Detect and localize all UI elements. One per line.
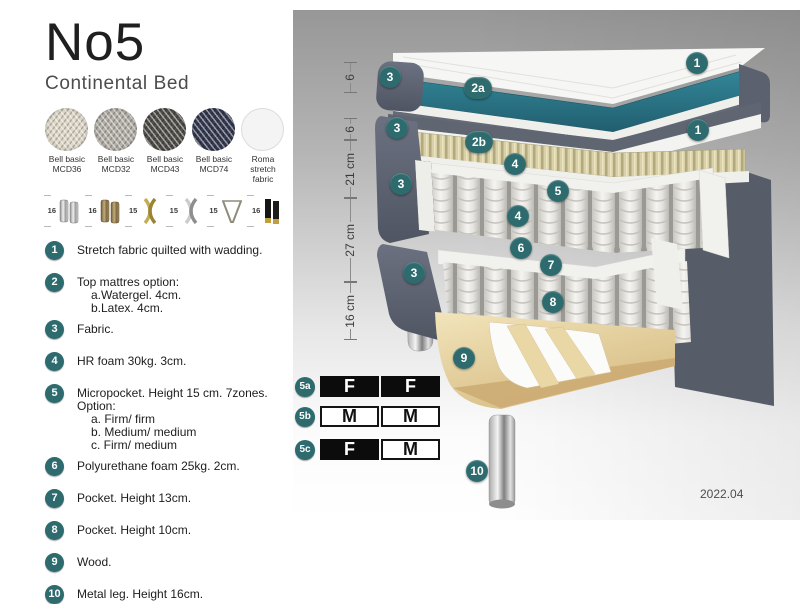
feature-item-7: 7 Pocket. Height 13cm. (45, 489, 293, 508)
feature-item-1: 1 Stretch fabric quilted with wadding. (45, 241, 293, 260)
feature-item-9: 9 Wood. (45, 553, 293, 572)
spec-panel: No5 Continental Bed Bell basicMCD36 Bell… (0, 0, 293, 533)
firmness-cell: F (320, 439, 379, 460)
version-date: 2022.04 (700, 487, 743, 501)
fabric-swatch-image (241, 108, 284, 151)
fabric-swatch-label: Bell basicMCD32 (94, 154, 138, 174)
firmness-cell: M (381, 406, 440, 427)
firmness-cells: M M (320, 406, 440, 427)
diagram-badge-3-mid2: 3 (390, 173, 412, 195)
feature-text: Top mattres option: a.Watergel. 4cm. b.L… (77, 273, 181, 315)
leg-cylinder-silver-icon (57, 196, 81, 226)
diagram-badge-2a: 2a (464, 77, 492, 99)
feature-text: Micropocket. Height 15 cm. 7zones. Optio… (77, 384, 293, 452)
firmness-row-5c: 5c F M (295, 439, 440, 460)
product-title: No5 (45, 16, 293, 70)
fabric-swatch-mcd36: Bell basicMCD36 (45, 108, 89, 185)
fabric-swatch-image (94, 108, 137, 151)
leg-black-gold-icon (261, 196, 283, 226)
firmness-cell: F (320, 376, 379, 397)
feature-text: Wood. (77, 553, 111, 569)
feature-number-badge: 10 (45, 585, 64, 604)
leg-option-black-gold: 16 (248, 193, 287, 229)
leg-cross-gold-icon (138, 196, 162, 226)
feature-item-4: 4 HR foam 30kg. 3cm. (45, 352, 293, 371)
diagram-badge-4-top: 4 (504, 153, 526, 175)
product-subtitle: Continental Bed (45, 73, 293, 95)
feature-text: Stretch fabric quilted with wadding. (77, 241, 262, 257)
dimension-6-top: 6 (341, 62, 359, 93)
diagram-badge-1-top: 1 (686, 52, 708, 74)
diagram-badge-5: 5 (547, 180, 569, 202)
diagram-badge-3-mid1: 3 (386, 117, 408, 139)
fabric-swatch-roma: Romastretch fabric (241, 108, 285, 185)
fabric-swatches: Bell basicMCD36 Bell basicMCD32 Bell bas… (45, 108, 287, 185)
feature-number-badge: 8 (45, 521, 64, 540)
firmness-cell: M (320, 406, 379, 427)
firmness-badge: 5c (295, 440, 315, 460)
fabric-swatch-label: Bell basicMCD74 (192, 154, 236, 174)
diagram-badge-7: 7 (540, 254, 562, 276)
leg-option-cylinder-silver: 16 (45, 193, 84, 229)
feature-item-2: 2 Top mattres option: a.Watergel. 4cm. b… (45, 273, 293, 315)
feature-number-badge: 9 (45, 553, 64, 572)
feature-text: HR foam 30kg. 3cm. (77, 352, 186, 368)
leg-cylinder-bronze-icon (98, 196, 122, 226)
feature-number-badge: 1 (45, 241, 64, 260)
fabric-swatch-image (143, 108, 186, 151)
diagram-badge-3-bottom: 3 (403, 262, 425, 284)
feature-number-badge: 2 (45, 273, 64, 292)
diagram-badge-9: 9 (453, 347, 475, 369)
diagram-badge-8: 8 (542, 291, 564, 313)
feature-text: Fabric. (77, 320, 114, 336)
fabric-swatch-image (45, 108, 88, 151)
diagram-badge-2b: 2b (465, 131, 493, 153)
firmness-row-5a: 5a F F (295, 376, 440, 397)
leg-option-hairpin: 15 (208, 193, 247, 229)
fabric-swatch-label: Bell basicMCD43 (143, 154, 187, 174)
dimension-27cm: 27 cm (341, 198, 359, 282)
feature-list: 1 Stretch fabric quilted with wadding. 2… (45, 241, 293, 604)
leg-option-cross-gold: 15 (126, 193, 165, 229)
diagram-panel: 6 6 21 cm 27 cm 16 cm 3 2a 1 3 2b 1 4 5 … (293, 10, 800, 520)
firmness-cell: F (381, 376, 440, 397)
fabric-swatch-mcd43: Bell basicMCD43 (143, 108, 187, 185)
firmness-cells: F M (320, 439, 440, 460)
firmness-cells: F F (320, 376, 440, 397)
firmness-badge: 5b (295, 407, 315, 427)
feature-number-badge: 6 (45, 457, 64, 476)
diagram-badge-6: 6 (510, 237, 532, 259)
dimension-16cm: 16 cm (341, 282, 359, 340)
firmness-cell: M (381, 439, 440, 460)
feature-item-5: 5 Micropocket. Height 15 cm. 7zones. Opt… (45, 384, 293, 452)
feature-item-8: 8 Pocket. Height 10cm. (45, 521, 293, 540)
leg-option-cross-silver: 15 (167, 193, 206, 229)
firmness-badge: 5a (295, 377, 315, 397)
leg-cross-silver-icon (179, 196, 203, 226)
feature-text: Polyurethane foam 25kg. 2cm. (77, 457, 240, 473)
dimension-21cm: 21 cm (341, 140, 359, 198)
feature-text: Pocket. Height 13cm. (77, 489, 191, 505)
fabric-swatch-image (192, 108, 235, 151)
fabric-swatch-mcd74: Bell basicMCD74 (192, 108, 236, 185)
diagram-badge-4-bottom: 4 (507, 205, 529, 227)
fabric-swatch-label: Romastretch fabric (241, 154, 285, 185)
leg-options: 16 16 15 15 (45, 193, 287, 229)
page: No5 Continental Bed Bell basicMCD36 Bell… (0, 0, 800, 533)
feature-text: Pocket. Height 10cm. (77, 521, 191, 537)
feature-text: Metal leg. Height 16cm. (77, 585, 203, 601)
diagram-badge-10: 10 (466, 460, 488, 482)
feature-number-badge: 5 (45, 384, 64, 403)
fabric-swatch-label: Bell basicMCD36 (45, 154, 89, 174)
fabric-swatch-mcd32: Bell basicMCD32 (94, 108, 138, 185)
firmness-row-5b: 5b M M (295, 406, 440, 427)
diagram-badge-3-top: 3 (379, 66, 401, 88)
diagram-badge-1-mid: 1 (687, 119, 709, 141)
feature-number-badge: 3 (45, 320, 64, 339)
feature-number-badge: 7 (45, 489, 64, 508)
leg-option-cylinder-bronze: 16 (86, 193, 125, 229)
feature-number-badge: 4 (45, 352, 64, 371)
feature-item-3: 3 Fabric. (45, 320, 293, 339)
dimension-6-mid: 6 (341, 118, 359, 140)
leg-hairpin-icon (219, 196, 245, 226)
feature-item-10: 10 Metal leg. Height 16cm. (45, 585, 293, 604)
feature-item-6: 6 Polyurethane foam 25kg. 2cm. (45, 457, 293, 476)
